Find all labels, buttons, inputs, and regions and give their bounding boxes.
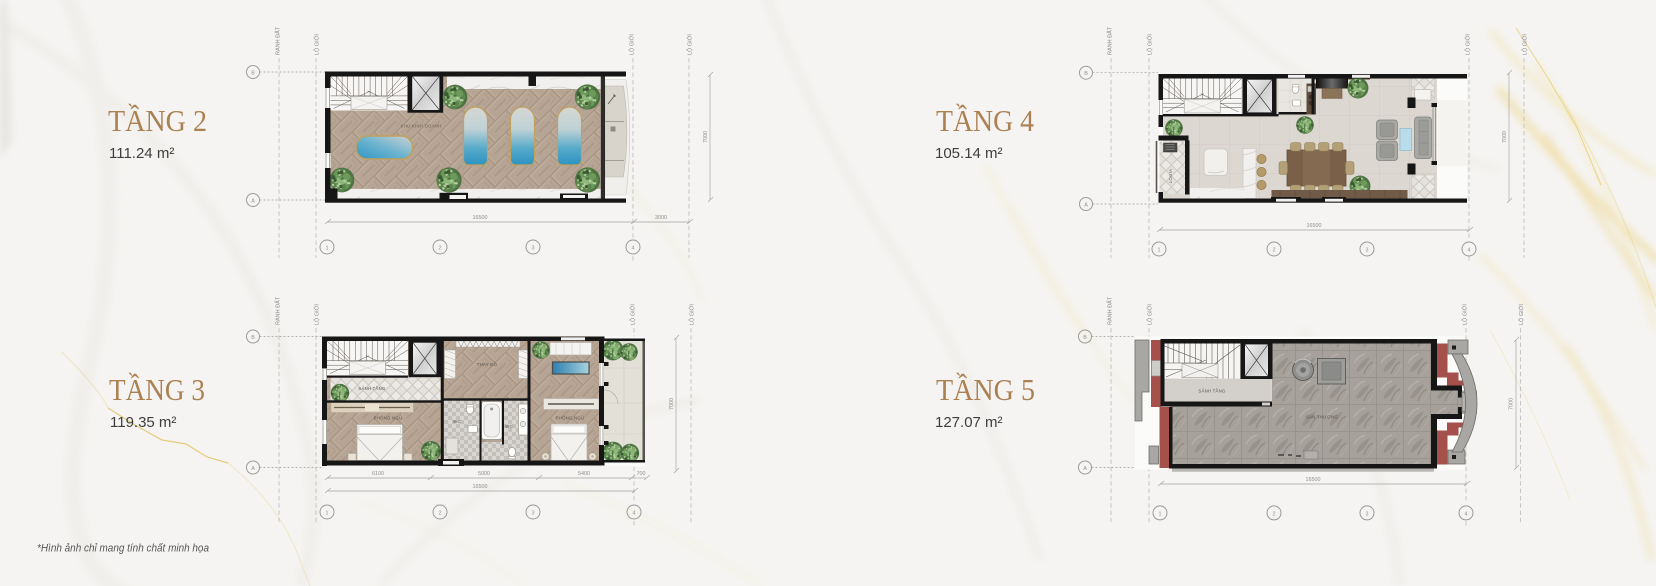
- svg-text:127.07 m²: 127.07 m²: [935, 414, 1003, 431]
- svg-text:RANH ĐẤT: RANH ĐẤT: [275, 26, 282, 55]
- svg-text:LỘ GIỚI: LỘ GIỚI: [1147, 304, 1154, 325]
- svg-text:7000: 7000: [1502, 131, 1508, 143]
- svg-text:111.24 m²: 111.24 m²: [109, 145, 174, 162]
- svg-text:A: A: [251, 466, 255, 472]
- svg-text:2: 2: [439, 511, 442, 517]
- svg-text:A: A: [1083, 466, 1087, 472]
- svg-text:A: A: [251, 199, 255, 205]
- svg-text:RANH ĐẤT: RANH ĐẤT: [1107, 296, 1114, 325]
- svg-text:SẢNH TẦNG: SẢNH TẦNG: [1198, 389, 1226, 394]
- svg-text:16500: 16500: [1307, 223, 1322, 229]
- svg-text:TẦNG 5: TẦNG 5: [936, 372, 1035, 407]
- svg-text:2: 2: [1273, 511, 1276, 517]
- svg-text:PHÒNG NGỦ: PHÒNG NGỦ: [556, 416, 585, 421]
- svg-text:*Hình ảnh chỉ mang tính chất m: *Hình ảnh chỉ mang tính chất minh họa: [37, 543, 209, 555]
- svg-text:4: 4: [633, 511, 636, 517]
- svg-text:7000: 7000: [1509, 398, 1515, 410]
- svg-text:RANH ĐẤT: RANH ĐẤT: [1107, 26, 1114, 55]
- svg-text:LỘ GIỚI: LỘ GIỚI: [1518, 304, 1525, 325]
- svg-text:2: 2: [1273, 248, 1276, 254]
- svg-text:1: 1: [326, 511, 329, 517]
- svg-text:4: 4: [632, 246, 635, 252]
- svg-text:3000: 3000: [655, 215, 667, 221]
- svg-text:1: 1: [1158, 248, 1161, 254]
- svg-text:4: 4: [1465, 511, 1468, 517]
- svg-text:5400: 5400: [578, 471, 590, 477]
- svg-text:LỘ GIỚI: LỘ GIỚI: [1147, 34, 1154, 55]
- svg-text:RANH ĐẤT: RANH ĐẤT: [275, 296, 282, 325]
- svg-text:B: B: [251, 335, 255, 341]
- svg-text:3: 3: [1366, 248, 1369, 254]
- svg-text:TẦNG 3: TẦNG 3: [109, 372, 205, 407]
- svg-text:3: 3: [1366, 511, 1369, 517]
- svg-text:PHÒNG NGỦ: PHÒNG NGỦ: [374, 416, 403, 421]
- svg-text:LỘ GIỚI: LỘ GIỚI: [629, 34, 636, 55]
- svg-text:700: 700: [637, 471, 646, 477]
- svg-text:B: B: [251, 71, 255, 77]
- svg-text:LỘ GIỚI: LỘ GIỚI: [314, 304, 321, 325]
- svg-text:TẦNG 2: TẦNG 2: [108, 103, 207, 138]
- svg-text:LỘ GIỚI: LỘ GIỚI: [1462, 304, 1469, 325]
- svg-text:16500: 16500: [1306, 477, 1321, 483]
- svg-text:TẦNG 4: TẦNG 4: [936, 103, 1034, 138]
- svg-text:2: 2: [439, 246, 442, 252]
- svg-text:LOGIA: LOGIA: [1168, 169, 1173, 183]
- svg-text:119.35 m²: 119.35 m²: [110, 414, 176, 431]
- svg-text:LỘ GIỚI: LỘ GIỚI: [1522, 34, 1529, 55]
- svg-text:LỘ GIỚI: LỘ GIỚI: [630, 304, 637, 325]
- svg-text:LỘ GIỚI: LỘ GIỚI: [689, 304, 696, 325]
- svg-text:B: B: [1084, 71, 1088, 77]
- svg-text:KHU KINH DOANH: KHU KINH DOANH: [401, 124, 442, 129]
- svg-text:1: 1: [326, 246, 329, 252]
- svg-text:16500: 16500: [473, 215, 488, 221]
- svg-text:LỘ GIỚI: LỘ GIỚI: [314, 34, 321, 55]
- svg-text:SÂN THƯỢNG: SÂN THƯỢNG: [1306, 415, 1338, 420]
- svg-text:LỘ GIỚI: LỘ GIỚI: [687, 34, 694, 55]
- svg-text:3: 3: [532, 511, 535, 517]
- svg-text:6100: 6100: [372, 471, 384, 477]
- svg-text:5000: 5000: [478, 471, 490, 477]
- svg-text:3: 3: [532, 246, 535, 252]
- svg-text:B: B: [1083, 335, 1087, 341]
- svg-text:A: A: [1084, 203, 1088, 209]
- svg-text:16500: 16500: [473, 484, 488, 490]
- svg-text:SẢNH TẦNG: SẢNH TẦNG: [358, 386, 386, 391]
- svg-text:7000: 7000: [703, 131, 709, 143]
- svg-text:WC: WC: [505, 424, 513, 429]
- svg-text:LỘ GIỚI: LỘ GIỚI: [1465, 34, 1472, 55]
- svg-text:7000: 7000: [669, 398, 675, 410]
- svg-text:1: 1: [1159, 511, 1162, 517]
- svg-text:THAY ĐỒ: THAY ĐỒ: [477, 362, 498, 367]
- svg-text:4: 4: [1468, 248, 1471, 254]
- svg-text:WC: WC: [453, 419, 461, 424]
- svg-text:105.14 m²: 105.14 m²: [935, 145, 1003, 162]
